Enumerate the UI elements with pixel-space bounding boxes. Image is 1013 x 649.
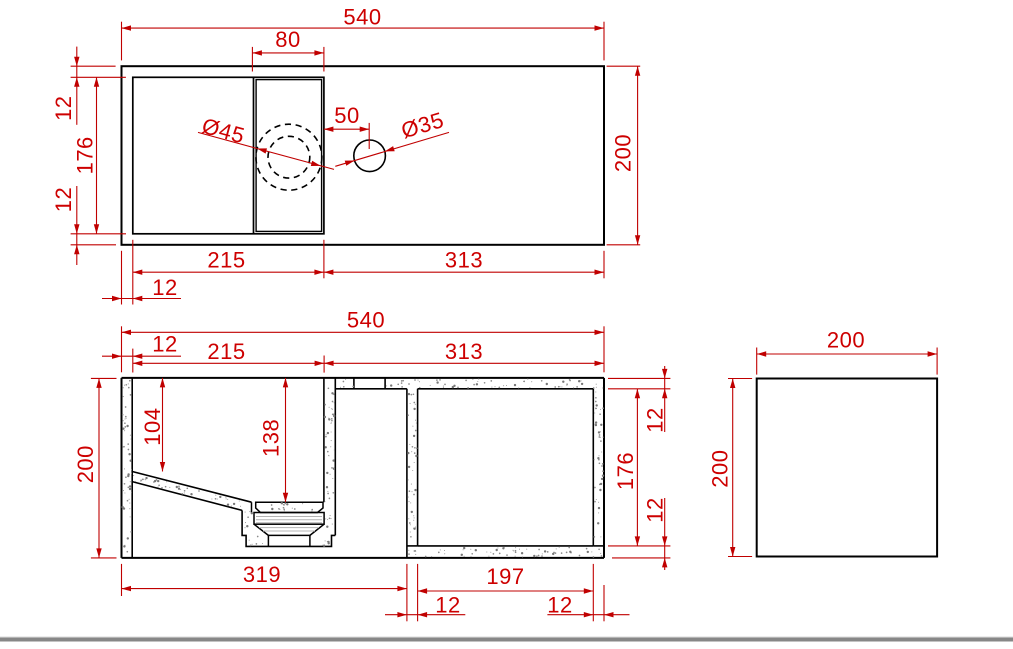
svg-text:540: 540: [347, 308, 385, 333]
svg-text:200: 200: [708, 449, 733, 487]
svg-text:12: 12: [547, 593, 572, 618]
svg-text:200: 200: [827, 328, 865, 353]
svg-text:215: 215: [207, 248, 245, 273]
svg-text:215: 215: [207, 339, 245, 364]
svg-text:540: 540: [343, 5, 381, 30]
svg-text:176: 176: [73, 136, 98, 174]
svg-text:12: 12: [51, 95, 76, 120]
svg-text:319: 319: [243, 562, 281, 587]
svg-text:313: 313: [445, 339, 483, 364]
svg-text:12: 12: [152, 275, 177, 300]
svg-text:50: 50: [334, 103, 359, 128]
svg-text:12: 12: [435, 593, 460, 618]
svg-text:200: 200: [611, 134, 636, 172]
svg-text:197: 197: [486, 564, 524, 589]
svg-text:200: 200: [73, 445, 98, 483]
svg-text:176: 176: [613, 452, 638, 490]
svg-text:138: 138: [258, 419, 283, 457]
svg-text:12: 12: [51, 187, 76, 212]
svg-text:313: 313: [445, 248, 483, 273]
svg-text:12: 12: [643, 407, 668, 432]
svg-text:12: 12: [152, 331, 177, 356]
svg-text:80: 80: [275, 27, 300, 52]
svg-text:104: 104: [140, 407, 165, 445]
svg-text:12: 12: [643, 497, 668, 522]
